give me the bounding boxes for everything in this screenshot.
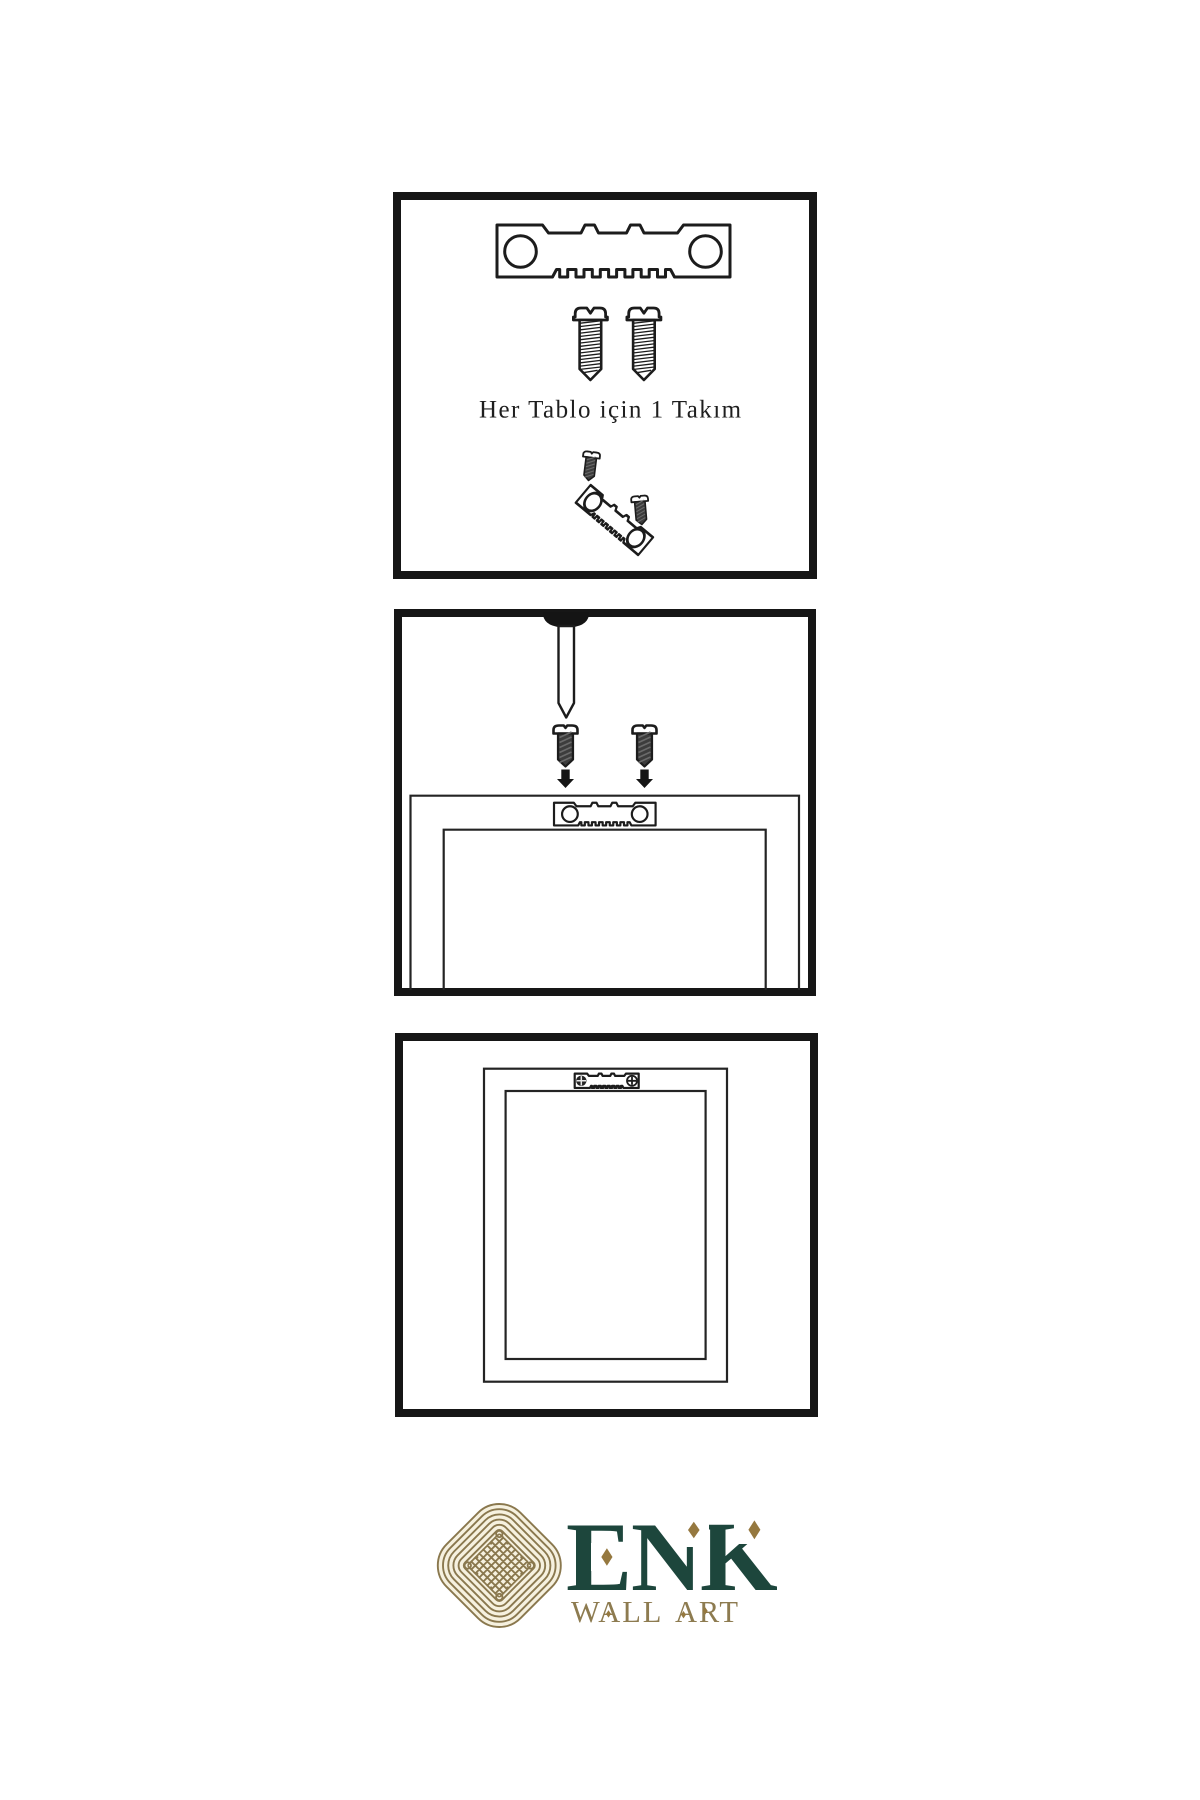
svg-text:Her Tablo için 1 Takım: Her Tablo için 1 Takım xyxy=(479,397,743,424)
svg-text:WALL ART: WALL ART xyxy=(571,1595,740,1629)
